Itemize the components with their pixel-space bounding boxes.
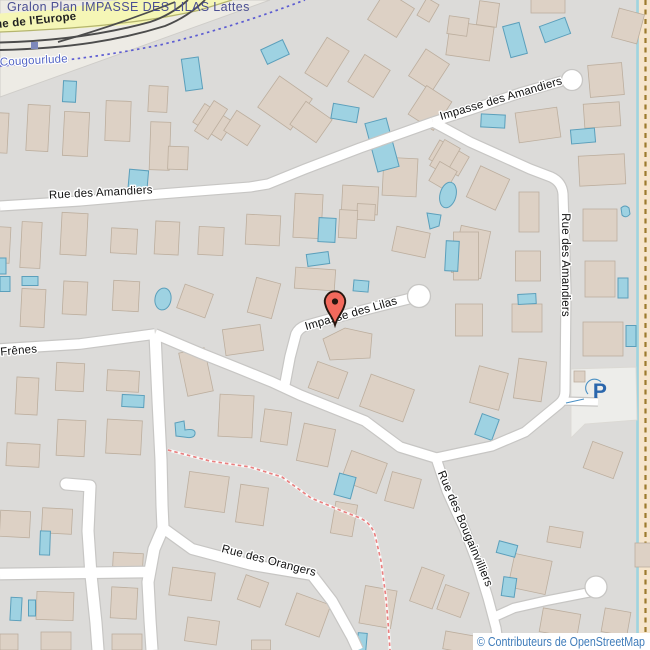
svg-text:Gralon Plan IMPASSE DES LILAS: Gralon Plan IMPASSE DES LILAS Lattes — [7, 0, 250, 14]
svg-text:Rue des Amandiers: Rue des Amandiers — [559, 213, 571, 317]
svg-text:P: P — [593, 380, 607, 403]
svg-text:© Contributeurs de OpenStreetM: © Contributeurs de OpenStreetMap — [477, 634, 645, 649]
